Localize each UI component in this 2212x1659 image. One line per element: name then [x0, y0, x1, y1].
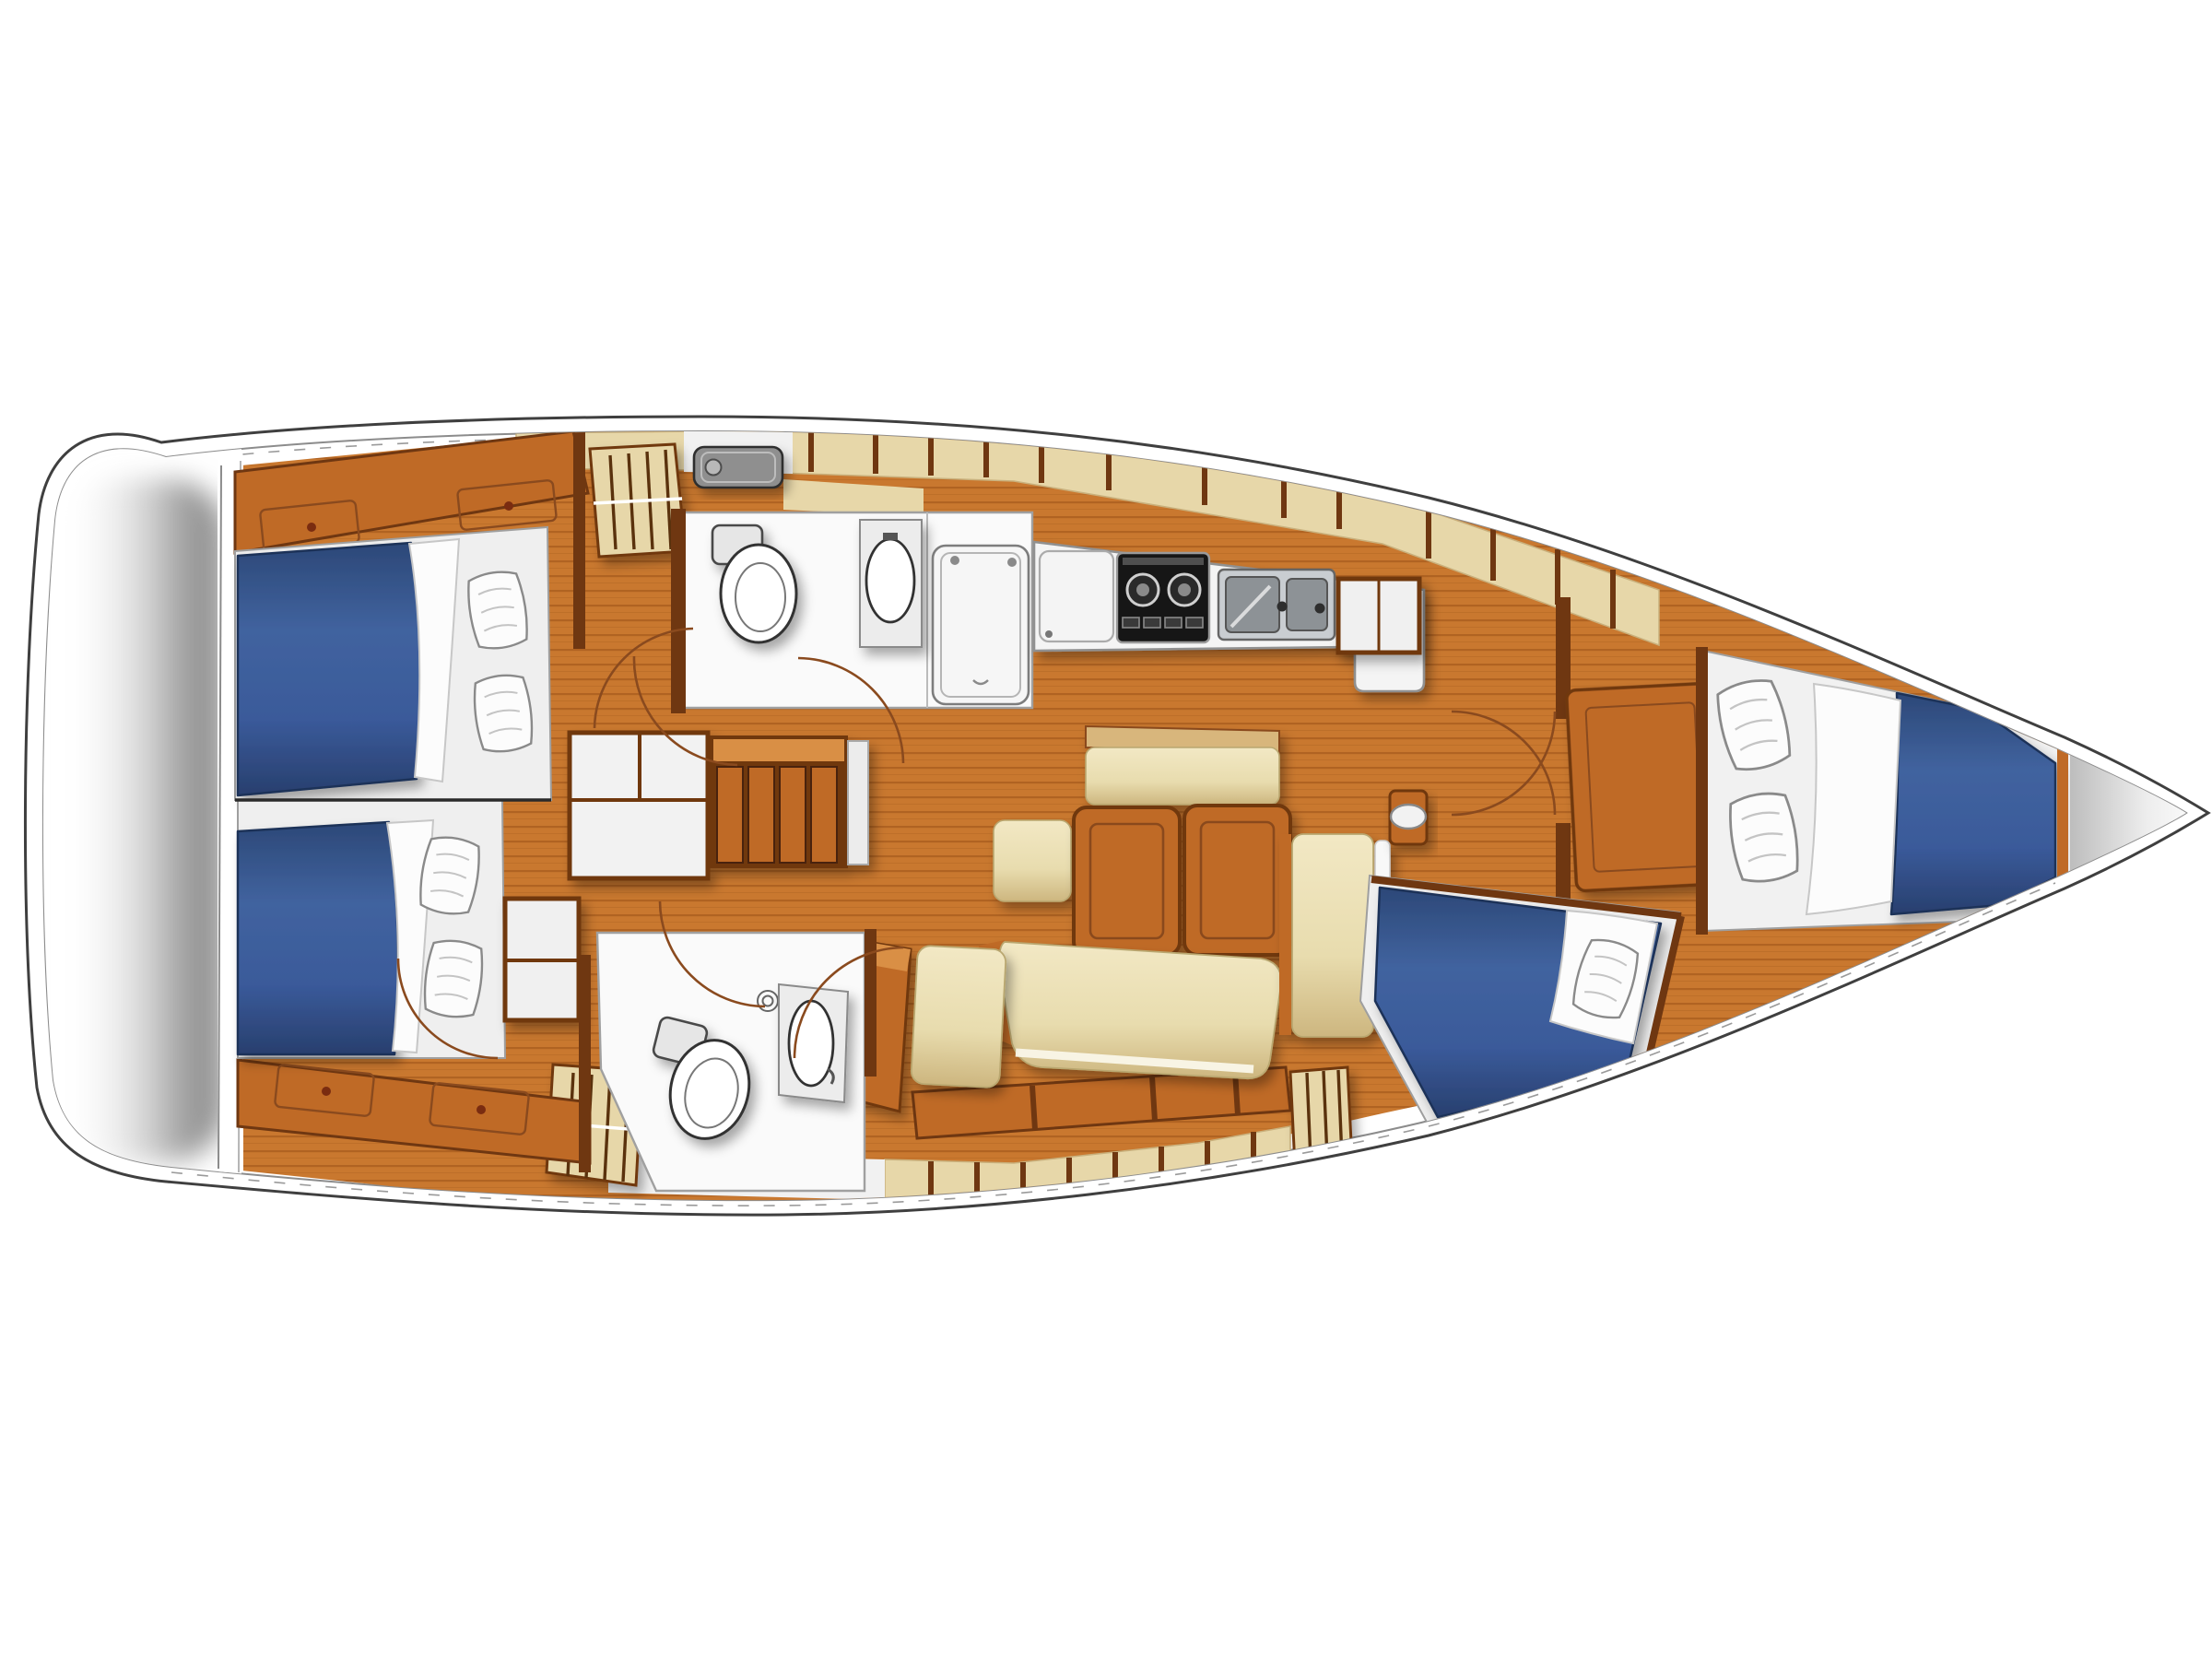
bench-top: [1086, 726, 1279, 805]
pillow: [471, 673, 535, 755]
companionway: [570, 733, 868, 878]
cabin-bulkhead: [579, 955, 591, 1172]
wardrobe: [1338, 579, 1419, 653]
companionway-steps: [710, 735, 848, 868]
stove: [1117, 553, 1209, 642]
head-bottom: [597, 929, 877, 1191]
seat: [911, 946, 1006, 1088]
cabin-bulkhead: [573, 431, 585, 649]
aft-cabin-top: [235, 431, 588, 800]
stool: [994, 820, 1071, 901]
yacht-floor-plan: [0, 0, 2212, 1659]
mast-post: [1390, 791, 1427, 844]
mattress: [238, 822, 398, 1054]
head-bulkhead: [671, 509, 686, 713]
mattress: [238, 543, 420, 795]
bed-sheet: [1806, 684, 1900, 914]
dresser: [505, 899, 579, 1020]
stern-swim-platform: [37, 433, 243, 1194]
head-top: [671, 509, 1032, 713]
double-sink: [1218, 570, 1335, 640]
washbasin: [860, 520, 922, 647]
settee-bottom: [979, 940, 1281, 1078]
forward-cabin-bed: [1696, 647, 2072, 935]
shower-tray: [933, 546, 1029, 704]
stern-shading: [65, 479, 226, 1161]
slatted-locker-forward: [1290, 1067, 1353, 1185]
pillow: [421, 938, 486, 1020]
washbasin: [779, 984, 848, 1102]
bed-head-bulkhead: [1696, 647, 1708, 935]
deck-hatch-top: [694, 447, 782, 488]
